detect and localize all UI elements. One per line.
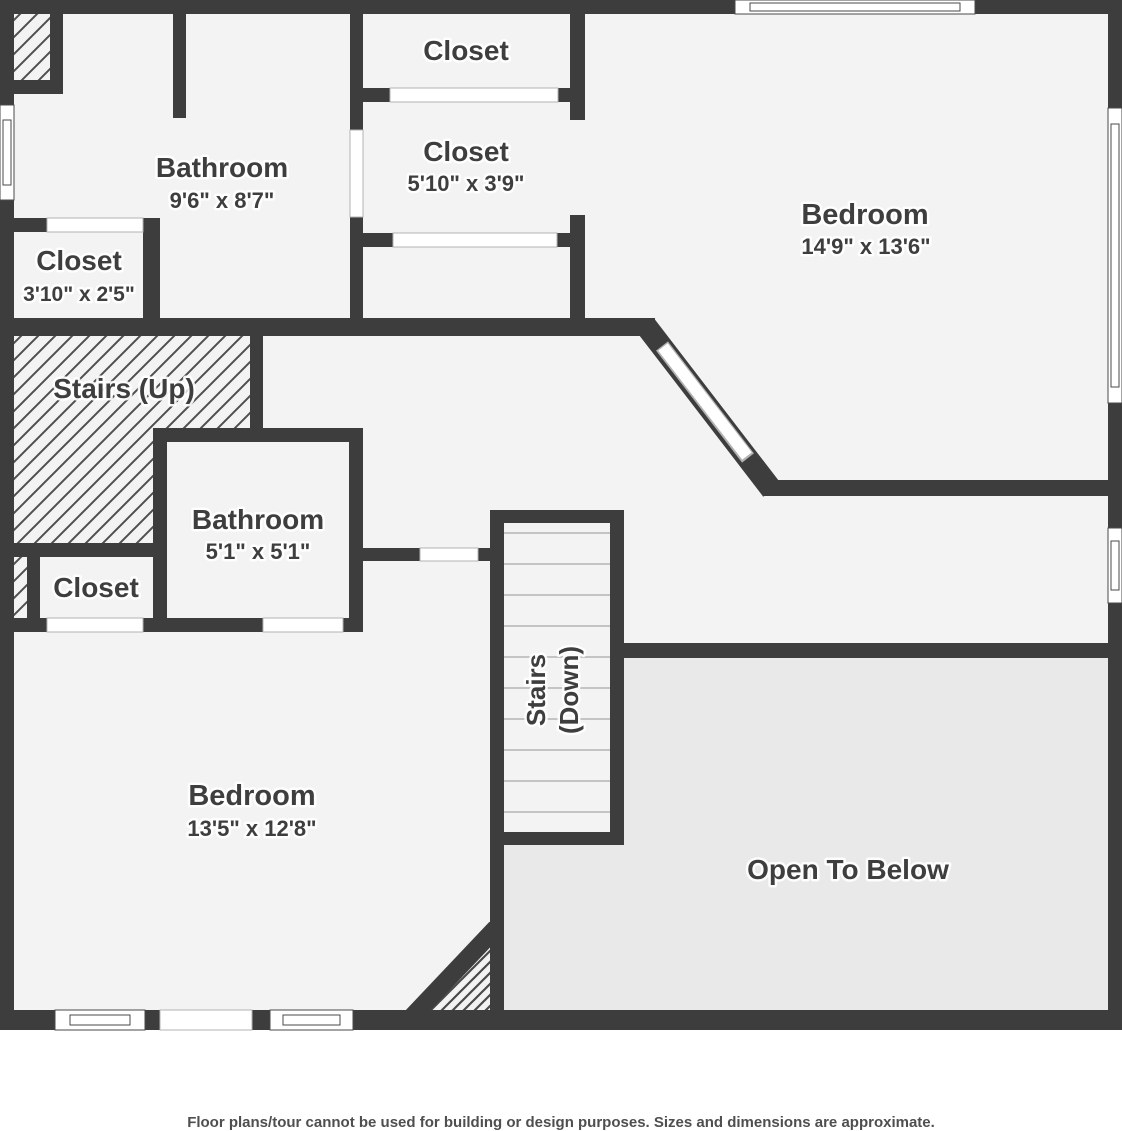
wall-chase-hatch	[14, 557, 28, 623]
closet-walkin-dims: 5'10" x 3'9"	[408, 171, 525, 196]
stairs-up-label: Stairs (Up)	[53, 373, 195, 404]
bedroom-left-dims: 13'5" x 12'8"	[187, 816, 316, 841]
closet-small-door	[47, 618, 143, 632]
closet-hall-label: Closet	[36, 245, 122, 276]
closet-walkin-door	[393, 233, 557, 247]
closet-top-label: Closet	[423, 35, 509, 66]
disclaimer-text: Floor plans/tour cannot be used for buil…	[187, 1114, 935, 1131]
bathroom-ensuite-door	[263, 618, 343, 632]
exterior-opening	[160, 1010, 252, 1030]
svg-text:(Down): (Down)	[554, 646, 584, 734]
open-to-below-label: Open To Below	[747, 854, 949, 885]
corner-chase-hatch	[14, 14, 50, 80]
bathroom-ensuite-label: Bathroom	[192, 504, 324, 535]
svg-text:Stairs: Stairs	[521, 654, 551, 726]
closet-top-door	[390, 88, 558, 102]
floor-plan-drawing: Bathroom 9'6" x 8'7" Closet 3'10" x 2'5"…	[0, 0, 1122, 1131]
closet-hall-dims: 3'10" x 2'5"	[23, 283, 135, 306]
bathroom-ensuite-dims: 5'1" x 5'1"	[206, 539, 311, 564]
bedroom-left-label: Bedroom	[188, 780, 315, 812]
bathroom-closet-door	[350, 130, 363, 217]
bathroom-main-label: Bathroom	[156, 152, 288, 183]
bedroom-right-dims: 14'9" x 13'6"	[801, 234, 930, 259]
floor-plan-page: Bathroom 9'6" x 8'7" Closet 3'10" x 2'5"…	[0, 0, 1122, 1131]
closet-hall-door	[47, 218, 143, 232]
bedroom-right-label: Bedroom	[801, 199, 928, 231]
closet-walkin-label: Closet	[423, 136, 509, 167]
bedroom-left-entry-door	[420, 548, 478, 561]
bathroom-main-dims: 9'6" x 8'7"	[170, 188, 275, 213]
closet-small-label: Closet	[53, 572, 139, 603]
